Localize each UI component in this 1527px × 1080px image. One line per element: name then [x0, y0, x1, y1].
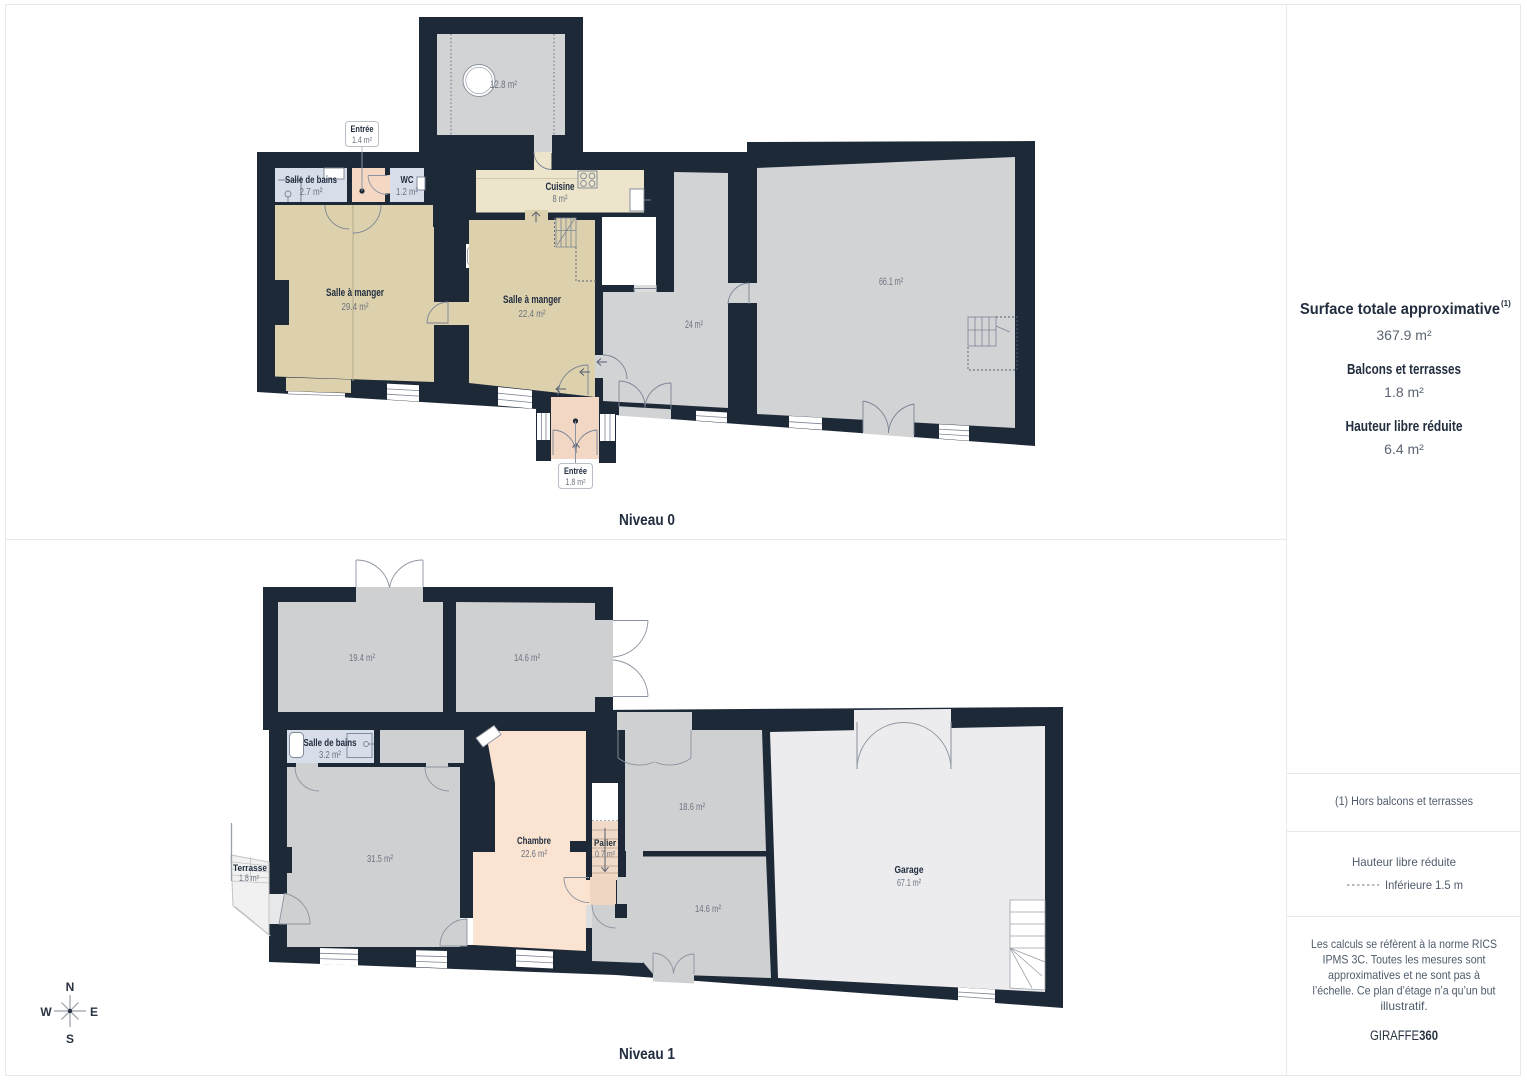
svg-text:Hauteur libre réduite: Hauteur libre réduite — [1352, 855, 1456, 869]
svg-text:24 m²: 24 m² — [685, 319, 703, 331]
svg-text:Niveau 1: Niveau 1 — [619, 1046, 675, 1063]
svg-text:1.8 m²: 1.8 m² — [239, 873, 259, 883]
svg-text:2.7 m²: 2.7 m² — [300, 187, 324, 198]
svg-text:l’échelle. Ce plan d’étage n’a: l’échelle. Ce plan d’étage n’a qu’un but — [1313, 984, 1497, 998]
svg-text:Balcons et terrasses: Balcons et terrasses — [1347, 362, 1461, 378]
svg-text:Inférieure 1.5 m: Inférieure 1.5 m — [1385, 878, 1463, 892]
svg-text:19.4 m²: 19.4 m² — [349, 652, 375, 664]
svg-text:29.4 m²: 29.4 m² — [342, 301, 369, 313]
svg-text:22.6 m²: 22.6 m² — [521, 849, 548, 860]
svg-text:66.1 m²: 66.1 m² — [879, 276, 903, 288]
svg-text:1.4 m²: 1.4 m² — [352, 135, 372, 145]
svg-text:Salle à manger: Salle à manger — [326, 287, 385, 299]
svg-text:31.5 m²: 31.5 m² — [367, 853, 393, 865]
svg-text:Entrée: Entrée — [564, 466, 587, 477]
svg-text:WC: WC — [401, 175, 414, 186]
svg-text:illustratif.: illustratif. — [1380, 999, 1427, 1013]
svg-text:E: E — [90, 1005, 98, 1019]
svg-text:(1): (1) — [1501, 299, 1511, 308]
svg-text:1.2 m²: 1.2 m² — [396, 187, 419, 198]
svg-text:Surface totale approximative: Surface totale approximative — [1300, 301, 1500, 318]
svg-text:S: S — [66, 1032, 74, 1046]
svg-text:Palier: Palier — [594, 838, 616, 849]
svg-text:8 m²: 8 m² — [553, 193, 568, 205]
svg-text:6.4 m²: 6.4 m² — [1384, 441, 1424, 457]
svg-text:Niveau 0: Niveau 0 — [619, 512, 675, 529]
svg-text:Les calculs se réfèrent à la n: Les calculs se réfèrent à la norme RICS — [1311, 937, 1497, 951]
svg-text:22.4 m²: 22.4 m² — [519, 308, 546, 320]
svg-text:1.8 m²: 1.8 m² — [566, 477, 586, 487]
svg-text:12.8 m²: 12.8 m² — [490, 79, 517, 91]
svg-text:14.6 m²: 14.6 m² — [695, 903, 721, 915]
svg-text:W: W — [40, 1005, 52, 1019]
svg-text:Salle de bains: Salle de bains — [285, 175, 337, 186]
svg-text:Cuisine: Cuisine — [546, 181, 575, 193]
svg-text:approximatives et ne sont pas: approximatives et ne sont pas à — [1328, 968, 1480, 982]
svg-text:18.6 m²: 18.6 m² — [679, 801, 705, 813]
svg-text:Chambre: Chambre — [517, 835, 551, 847]
svg-text:0.7 m²: 0.7 m² — [595, 849, 615, 859]
svg-text:Salle de bains: Salle de bains — [304, 738, 357, 749]
svg-text:(1) Hors balcons et terrasses: (1) Hors balcons et terrasses — [1335, 796, 1473, 808]
svg-text:GIRAFFE360: GIRAFFE360 — [1370, 1028, 1438, 1043]
svg-text:1.8 m²: 1.8 m² — [1384, 384, 1424, 400]
svg-text:Entrée: Entrée — [351, 124, 374, 135]
svg-text:367.9 m²: 367.9 m² — [1376, 327, 1432, 343]
svg-text:Salle à manger: Salle à manger — [503, 294, 562, 306]
svg-text:IPMS 3C. Toutes les mesures so: IPMS 3C. Toutes les mesures sont — [1323, 953, 1487, 967]
svg-text:14.6 m²: 14.6 m² — [514, 652, 540, 664]
svg-text:3.2 m²: 3.2 m² — [319, 750, 342, 761]
svg-text:Garage: Garage — [895, 864, 924, 876]
svg-text:67.1 m²: 67.1 m² — [897, 878, 921, 889]
svg-text:N: N — [66, 980, 75, 994]
svg-text:Hauteur libre réduite: Hauteur libre réduite — [1346, 419, 1463, 435]
